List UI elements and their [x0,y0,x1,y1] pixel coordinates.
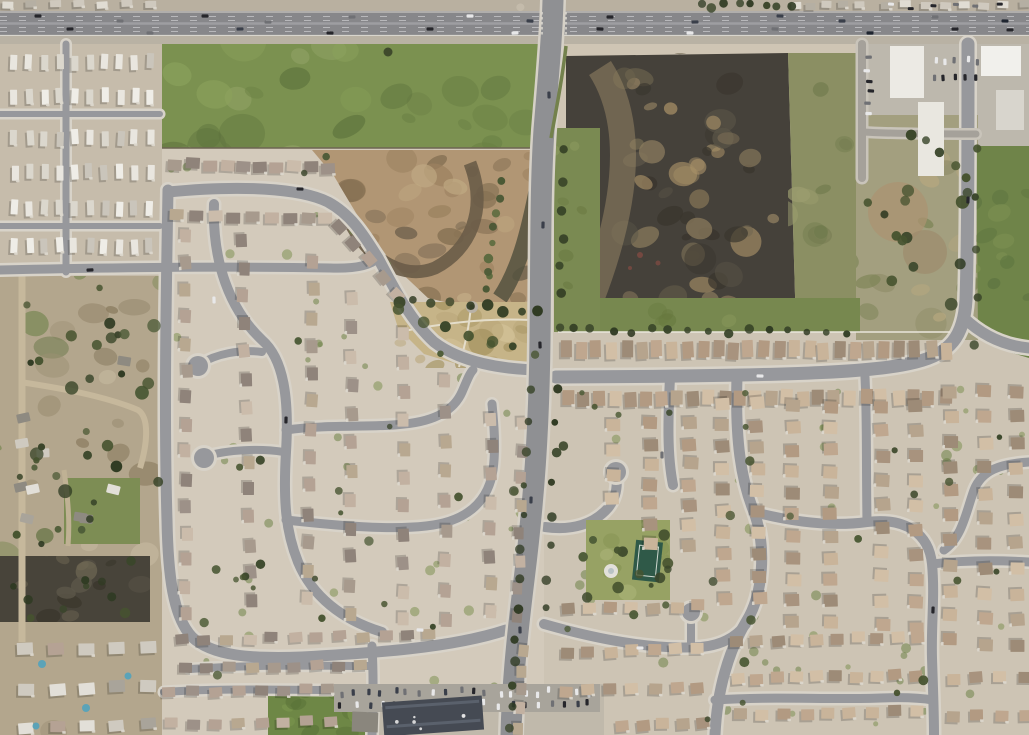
house [144,90,154,107]
house [15,642,34,657]
house [345,406,359,422]
green-strip-south [556,298,860,332]
house [243,211,260,224]
house [968,709,984,722]
house [397,441,410,457]
vehicle [636,646,643,649]
vehicle [776,14,783,17]
house [784,486,800,500]
house [304,392,318,408]
house [178,254,192,270]
house [679,538,696,553]
house [143,201,153,218]
house [641,477,658,492]
house [713,396,730,411]
house [302,476,315,492]
house [859,389,873,406]
house [642,437,658,452]
house [641,516,658,531]
house [748,483,764,497]
house [85,200,95,217]
house [241,480,254,495]
house [8,199,18,217]
house [977,510,993,525]
house [54,166,63,183]
house [275,686,291,698]
house [69,129,79,147]
house [872,399,888,414]
house [301,533,315,549]
vehicle [526,19,533,22]
vehicle [236,27,243,30]
house [38,131,47,148]
house [602,602,618,616]
house [889,631,905,645]
house [38,199,49,217]
house [822,441,839,456]
house [579,684,595,698]
house [244,592,257,607]
house [100,200,109,217]
house [647,683,663,697]
vehicle [838,19,845,22]
house [653,391,668,409]
vehicle [538,341,541,348]
vehicle [146,31,153,34]
house [906,398,923,413]
house [119,0,133,9]
house [613,720,630,734]
satellite-map-canvas[interactable] [0,0,1029,735]
house [206,210,222,224]
house [10,166,20,183]
house [821,572,837,586]
house [908,572,924,586]
house [396,497,409,512]
house [230,685,245,698]
house [139,717,157,731]
house [872,422,889,438]
house [822,551,839,566]
house [783,443,799,458]
house [886,668,902,682]
house [437,493,450,509]
road-verge [554,128,600,332]
house [76,682,95,697]
house [69,201,78,218]
house [144,53,154,70]
house [907,594,924,609]
house [604,342,618,361]
house [69,164,79,182]
house [770,635,787,649]
house [396,355,409,371]
house [1008,587,1024,602]
house [907,448,923,463]
house [906,340,920,359]
house [274,718,289,730]
vehicle [86,268,93,272]
house [1008,560,1024,575]
house [907,547,924,562]
house [284,160,301,174]
house [560,390,575,407]
house [239,399,253,415]
vehicle [596,27,603,31]
house [679,477,696,492]
house [601,683,616,696]
house [763,391,778,408]
house [481,548,495,564]
house [775,708,791,721]
house [748,503,764,517]
swimming-pool [125,673,132,680]
house [396,325,409,340]
house [941,607,958,622]
house [604,442,620,456]
house [236,342,250,358]
house [304,310,317,325]
house [941,531,958,546]
house [784,550,800,564]
house [975,585,992,600]
house [868,633,884,646]
house [1006,534,1023,550]
house [113,54,123,71]
house [300,563,313,579]
house [873,472,890,487]
vehicle [966,196,970,203]
house [848,342,862,361]
house [604,417,620,432]
house [638,391,653,408]
house [177,442,190,458]
vehicle [686,31,693,34]
house [244,662,260,675]
house [941,583,958,598]
house [604,467,621,482]
house [751,590,768,605]
house [740,340,754,360]
house [714,524,731,539]
house [822,529,838,544]
house [841,390,855,407]
house [728,636,744,649]
house [54,132,64,149]
house [891,390,906,408]
house [98,165,108,183]
house [907,497,924,513]
house [872,594,888,608]
house [1007,512,1024,527]
house [130,88,140,105]
house [975,535,991,549]
house [799,709,814,722]
house [316,213,332,226]
house [69,88,79,105]
house [782,463,799,478]
house [267,162,284,175]
house [138,641,157,656]
house [354,632,370,645]
house [819,708,834,721]
house [832,341,846,360]
house [874,496,891,512]
house [840,707,856,721]
house [822,614,838,628]
house [787,340,801,359]
house [25,238,35,255]
house [784,419,801,434]
vehicle [771,27,778,30]
house [716,591,732,606]
house [483,411,497,427]
house [711,340,725,359]
house [876,341,890,360]
house [581,603,597,616]
house [654,718,669,731]
vehicle [466,14,473,17]
house [25,130,35,148]
house [939,343,953,362]
vehicle [547,91,550,98]
house [821,464,838,479]
house [602,647,618,661]
vehicle [691,20,698,23]
house [848,672,864,686]
house [941,384,957,398]
vehicle [529,496,532,503]
vehicle [201,14,208,17]
house [993,710,1009,723]
house [669,390,684,407]
house [23,0,37,9]
house [254,717,270,730]
house [513,553,525,567]
house [85,55,94,72]
vehicle [416,628,423,632]
house [251,162,268,176]
house [344,290,358,306]
house [177,281,190,296]
house [47,683,66,699]
house [700,389,715,406]
house [945,674,960,687]
house [975,408,991,423]
retail-building [918,102,944,176]
house [821,419,838,434]
house [748,674,764,687]
house [579,647,594,660]
house [623,644,638,658]
house [713,438,730,454]
house [439,523,452,539]
house [344,463,357,479]
house [680,437,697,452]
house [163,717,178,729]
house [201,161,217,174]
house [262,632,278,644]
house [873,520,890,535]
vehicle [326,31,333,34]
house [330,662,346,674]
house [266,663,281,675]
vehicle [1001,19,1008,22]
house [187,210,204,223]
house [179,362,193,378]
house [620,340,633,359]
house [195,635,211,648]
house [23,201,33,218]
house [559,603,575,617]
house [308,659,324,672]
vehicle [264,20,271,23]
house [238,426,252,442]
house [180,526,193,541]
house [588,340,601,359]
house [891,340,905,359]
house [909,632,925,646]
house [167,209,184,223]
house [783,592,800,607]
house [688,682,704,696]
house [342,547,356,563]
vehicle [34,14,41,17]
house [941,557,958,572]
house [872,544,889,559]
vehicle [931,15,938,18]
house [977,637,994,652]
house [634,342,648,362]
house [303,449,316,465]
house [732,708,747,721]
house [8,55,18,72]
house [1008,638,1024,652]
house [343,606,356,622]
house [977,436,994,451]
house [76,643,95,657]
house [641,495,657,509]
house [729,673,745,687]
house [138,680,156,694]
retail-building [996,90,1024,130]
house [682,455,699,470]
house [559,648,574,661]
house [114,239,124,256]
house [603,490,619,505]
house [872,567,889,582]
house [218,635,233,647]
house [748,394,765,410]
vehicle [660,451,663,458]
house [714,481,730,495]
house [177,579,190,595]
house [241,508,254,524]
house [115,131,125,149]
swimming-pool [82,704,90,712]
house [233,232,247,248]
house [304,338,317,353]
house [574,342,587,361]
red-debris [656,261,661,266]
house [649,340,663,359]
house [861,341,875,361]
highway-shoulder [0,36,1029,44]
house [680,498,697,513]
house [300,507,314,523]
house [750,546,767,561]
house [281,213,298,226]
house [808,670,824,684]
gas-canopy [981,46,1021,76]
house [396,610,409,625]
house [623,683,639,697]
house [924,340,939,360]
swimming-pool [38,660,46,668]
house [607,391,621,408]
house [239,371,252,387]
house [641,535,658,550]
house [305,365,318,381]
vehicle [931,606,934,613]
house [198,663,214,675]
house [352,660,367,673]
house [803,340,818,360]
house [696,341,710,360]
house [307,281,320,296]
house [689,599,704,612]
house [145,130,155,147]
house [864,707,879,720]
house [207,687,223,700]
house [128,55,138,72]
house [634,720,650,735]
house [827,670,842,683]
house [114,202,124,219]
house [343,492,356,507]
house [319,684,335,696]
house [343,434,357,450]
house [822,399,839,414]
house [16,684,35,698]
house [331,630,347,643]
house [160,687,175,700]
house [322,716,338,729]
house [942,507,958,522]
house [785,572,801,586]
house [886,705,901,718]
swimming-pool [33,723,40,730]
house [8,90,17,107]
vehicle [606,15,613,18]
vehicle [284,416,287,423]
house [397,384,410,400]
house [178,550,191,566]
house [685,391,700,409]
vehicle [296,187,303,190]
house [178,498,191,513]
house [747,439,764,454]
house [1006,460,1023,475]
house [179,417,192,433]
house [1007,484,1023,498]
house [641,415,658,430]
house [769,671,784,684]
house [297,683,312,695]
house [784,397,801,412]
vehicle [511,31,518,35]
house [8,238,18,255]
